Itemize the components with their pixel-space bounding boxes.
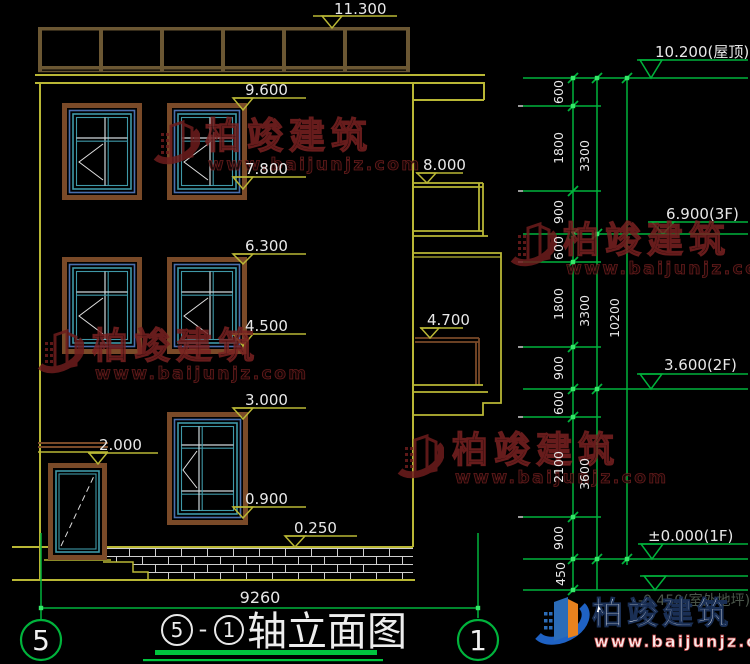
dim-9260: 9260 — [240, 588, 281, 607]
mark-7800: 7.800 — [245, 160, 288, 178]
brick-paving — [103, 548, 413, 580]
mark-0250: 0.250 — [294, 519, 337, 537]
mark-1f: ±0.000(1F) — [648, 527, 733, 545]
title-block: 5 1 5 - 1 轴立面图 — [32, 609, 487, 657]
door-canopy — [38, 443, 108, 452]
dim-900-b: 900 — [551, 356, 566, 380]
dim-600-b: 600 — [551, 236, 566, 260]
dim-3600: 3600 — [577, 458, 592, 490]
window-3f-left — [65, 106, 140, 198]
title-axis-b: 1 — [223, 618, 236, 642]
mark-roof: 10.200(屋顶) — [655, 43, 749, 61]
mark-3000: 3.000 — [245, 391, 288, 409]
watermark-brand: 柏竣建筑 — [92, 326, 260, 367]
dim-2100: 2100 — [551, 451, 566, 483]
roof-railing — [38, 27, 410, 72]
dim-900-c: 900 — [551, 526, 566, 550]
baijun-building-logo-icon — [40, 331, 81, 370]
mark-4700: 4.700 — [427, 311, 470, 329]
footer-logo-url: www.baijunjz.com — [594, 632, 750, 651]
watermark-url: www.baijunjz.com — [566, 259, 750, 279]
watermark-url: www.baijunjz.com — [95, 364, 309, 384]
dim-1800-b: 1800 — [551, 288, 566, 320]
dim-450: 450 — [553, 562, 568, 586]
watermark-mid-right: 柏竣建筑 www.baijunjz.com — [513, 220, 750, 279]
mark-11300: 11.300 — [334, 0, 387, 18]
mark-6300: 6.300 — [245, 237, 288, 255]
mark-8000: 8.000 — [423, 156, 466, 174]
watermark-url: www.baijunjz.com — [208, 155, 422, 175]
footer-logo: 柏竣建筑 www.baijunjz.com — [538, 596, 750, 651]
elevation-drawing: 柏竣建筑 www.baijunjz.com 柏竣建筑 www.baijunjz.… — [0, 0, 750, 664]
dim-600-a: 600 — [551, 80, 566, 104]
elevation-drawing-canvas: 柏竣建筑 www.baijunjz.com 柏竣建筑 www.baijunjz.… — [0, 0, 750, 664]
baijun-building-logo-icon — [400, 436, 441, 475]
dim-3300-b: 3300 — [577, 295, 592, 327]
mark-2000: 2.000 — [99, 436, 142, 454]
mark-9600: 9.600 — [245, 81, 288, 99]
mark-3f: 6.900(3F) — [666, 205, 739, 223]
title-axis-a: 5 — [171, 618, 184, 642]
mark-4500: 4.500 — [245, 317, 288, 335]
watermark-bottom: 柏竣建筑 www.baijunjz.com — [400, 430, 669, 488]
dim-600-c: 600 — [551, 391, 566, 415]
watermark-brand: 柏竣建筑 — [563, 220, 731, 261]
baijun-building-logo-icon — [513, 224, 554, 263]
watermark-brand: 柏竣建筑 — [205, 116, 373, 157]
title-dash: - — [199, 615, 208, 643]
mark-2f: 3.600(2F) — [664, 356, 737, 374]
dim-1800-a: 1800 — [551, 132, 566, 164]
dim-3300-a: 3300 — [577, 140, 592, 172]
dim-10200: 10200 — [607, 298, 622, 338]
entry-door — [51, 466, 105, 558]
footer-logo-brand: 柏竣建筑 — [592, 596, 732, 632]
dim-900-a: 900 — [551, 200, 566, 224]
axis-number-1: 1 — [469, 624, 487, 657]
baijun-color-logo-icon — [538, 597, 586, 641]
balcony-3f — [413, 183, 488, 236]
mark-0900: 0.900 — [245, 490, 288, 508]
title-underline-thin — [143, 659, 383, 661]
drawing-title: 轴立面图 — [247, 609, 407, 655]
axis-number-5: 5 — [32, 624, 50, 657]
watermark-brand: 柏竣建筑 — [452, 430, 620, 471]
